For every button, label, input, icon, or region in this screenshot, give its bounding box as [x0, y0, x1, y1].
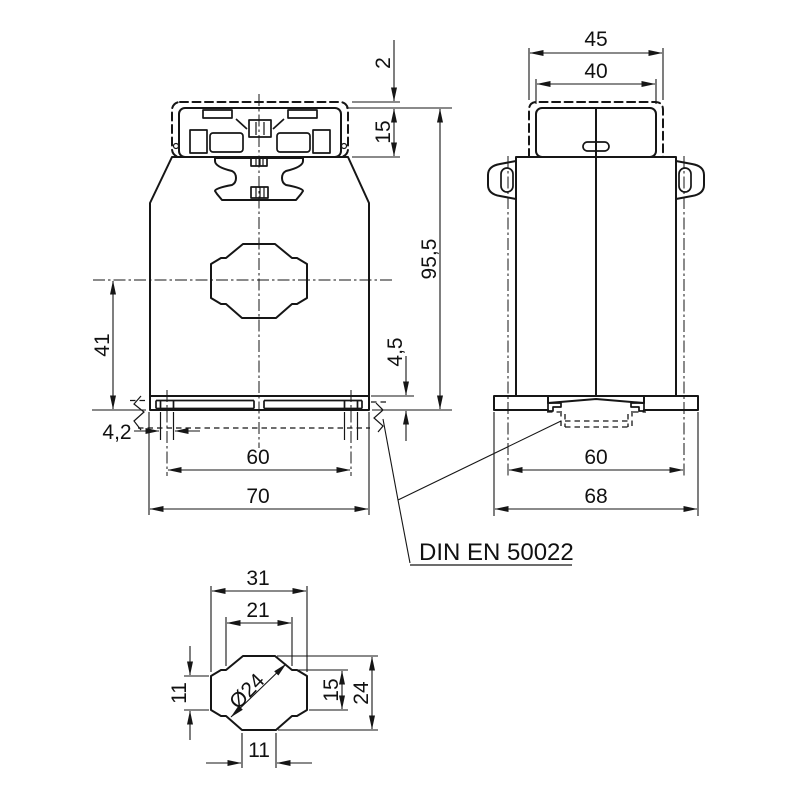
front-clamp-ribs — [256, 122, 264, 135]
front-rail-hidden-edges — [130, 401, 386, 429]
side-view — [488, 102, 704, 478]
front-terminal-screw-right — [277, 133, 310, 152]
front-terminal-center-clamp — [249, 120, 271, 137]
dim-cover-gap: 2 — [372, 57, 395, 69]
front-cover-pin-right — [342, 144, 347, 149]
dim-side-hole-spacing: 60 — [584, 446, 607, 469]
front-view — [93, 94, 392, 476]
front-extension-lines — [92, 102, 452, 515]
front-dimensions: 2 15 95,5 41 4,5 4,2 60 70 — [91, 40, 452, 515]
dim-opening-height: 24 — [350, 681, 373, 705]
front-terminal-port-left — [190, 130, 207, 153]
dim-total-height: 95,5 — [418, 239, 441, 280]
din-rail-label: DIN EN 50022 — [419, 539, 574, 566]
dim-terminal-height: 15 — [372, 120, 395, 143]
dim-bottom-slot-width: 11 — [248, 739, 270, 762]
side-ear-left-slot — [501, 168, 513, 192]
dim-band-height: 11 — [168, 682, 191, 704]
front-spool-screw-bottom-ribs — [256, 187, 264, 198]
drawing-page: 2 15 95,5 41 4,5 4,2 60 70 — [0, 0, 800, 800]
dim-pocket-height: 15 — [320, 678, 343, 701]
front-terminal-port-right — [313, 130, 330, 153]
front-cover-pin-left — [174, 144, 179, 149]
dim-opening-width: 31 — [246, 567, 269, 590]
dim-top-slot-width: 21 — [246, 599, 269, 622]
dim-front-hole-spacing: 60 — [246, 446, 269, 469]
front-terminal-tab-right — [288, 110, 317, 118]
side-rail-hook-right — [631, 403, 644, 411]
dim-diameter: Ø24 — [225, 669, 269, 714]
technical-drawing-canvas: 2 15 95,5 41 4,5 4,2 60 70 — [0, 0, 800, 800]
side-ear-left — [488, 161, 516, 199]
side-ear-right — [676, 161, 704, 199]
side-base-outline — [494, 396, 698, 410]
dim-front-base-width: 70 — [246, 485, 269, 508]
front-terminal-tab-left — [203, 110, 232, 118]
dim-center-to-base: 41 — [91, 333, 114, 356]
side-rail-hook-left — [548, 403, 561, 411]
aperture-detail-view: 31 21 Ø24 11 15 24 11 — [168, 567, 378, 768]
dim-slot-width: 4,2 — [102, 421, 131, 444]
dim-foot-height: 4,5 — [384, 337, 407, 366]
front-rail-break-right — [374, 403, 383, 432]
dim-head-width: 40 — [584, 60, 607, 83]
side-rail-hidden-profile — [547, 411, 646, 427]
dim-cover-width: 45 — [584, 28, 607, 51]
side-ear-right-slot — [679, 168, 691, 192]
dim-side-base-width: 68 — [584, 485, 607, 508]
detail-extension-lines — [184, 586, 378, 768]
front-terminal-screw-left — [210, 133, 243, 152]
din-rail-callout: DIN EN 50022 — [383, 419, 574, 566]
front-spool-screw-top-ribs — [256, 158, 263, 166]
